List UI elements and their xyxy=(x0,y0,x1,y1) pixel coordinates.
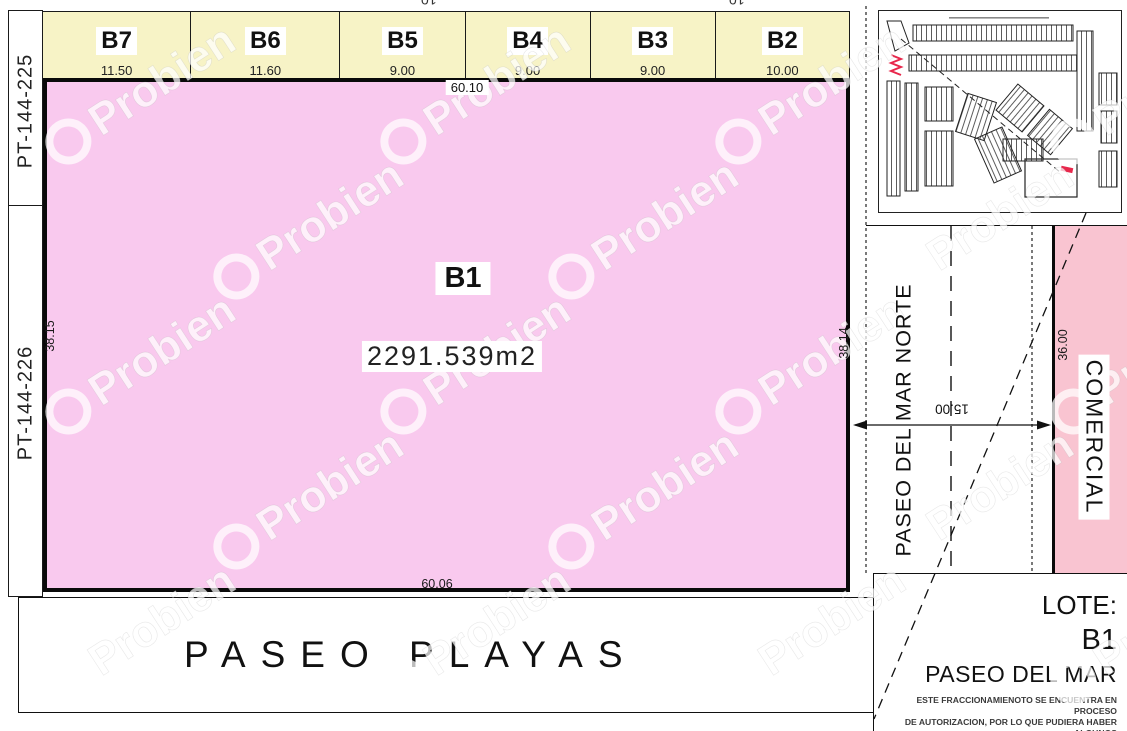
parcel-b1 xyxy=(43,78,850,592)
lot-cell-B6: B611.60 xyxy=(190,12,339,78)
boundary-label-pt-144-225: PT-144-225 xyxy=(14,54,37,169)
lot-dimension-B3: 9.00 xyxy=(591,63,715,78)
lot-cell-B2: B210.00 xyxy=(715,12,849,78)
lot-label-B5: B5 xyxy=(382,27,423,55)
lot-label-B2: B2 xyxy=(762,27,803,55)
site-location-map xyxy=(878,10,1122,213)
lot-dimension-B5: 9.00 xyxy=(340,63,464,78)
lot-dimension-B6: 11.60 xyxy=(191,63,339,78)
street-paseo-playas: PASEO PLAYAS xyxy=(18,597,875,713)
title-lot-id: B1 xyxy=(874,624,1117,657)
title-block: LOTE: B1 PASEO DEL MAR ESTE FRACCIONAMIE… xyxy=(873,573,1127,731)
lot-label-B3: B3 xyxy=(632,27,673,55)
lot-label-B7: B7 xyxy=(96,27,137,55)
dimension-arrowhead-right xyxy=(1037,421,1051,430)
street-paseo-del-mar-norte-label: PASEO DEL MAR NORTE xyxy=(892,283,917,556)
dimension-arrowhead-left xyxy=(853,421,867,430)
lot-plan-drawing: PT-144-225 PT-144-226 B711.50B611.60B59.… xyxy=(0,0,1127,731)
clipped-dimension-top-1: 10 xyxy=(421,0,437,8)
lot-cell-B7: B711.50 xyxy=(43,12,190,78)
lot-cell-B3: B39.00 xyxy=(590,12,715,78)
street-paseo-playas-label: PASEO PLAYAS xyxy=(184,634,638,676)
road-top-line xyxy=(866,225,1127,226)
lot-dimension-B2: 10.00 xyxy=(716,63,849,78)
lot-cell-B4: B49.00 xyxy=(465,12,590,78)
commercial-lot-label: COMERCIAL xyxy=(1079,355,1110,520)
boundary-label-pt-144-226: PT-144-226 xyxy=(14,346,37,461)
map-marker-red-zigzag xyxy=(891,55,901,75)
disclaimer-line-2: DE AUTORIZACION, POR LO QUE PUDIERA HABE… xyxy=(874,717,1117,731)
road-width-dimension: 15.00 xyxy=(935,402,969,417)
lot-label-B4: B4 xyxy=(507,27,548,55)
dimension-right: 38.14 xyxy=(837,327,851,358)
site-map-graphic xyxy=(879,11,1121,211)
parcel-b1-area: 2291.539m2 xyxy=(362,341,542,372)
boundary-divider-line xyxy=(9,205,42,206)
lot-dimension-B4: 9.00 xyxy=(466,63,590,78)
disclaimer-line-1: ESTE FRACCIONAMIENOTO SE ENCUENTRA EN PR… xyxy=(874,695,1117,717)
left-boundary-strip: PT-144-225 PT-144-226 xyxy=(8,10,43,597)
lot-cell-B5: B59.00 xyxy=(339,12,464,78)
parcel-b1-label: B1 xyxy=(435,262,490,295)
commercial-depth-dimension: 36.00 xyxy=(1056,329,1070,360)
dimension-top: 60.10 xyxy=(446,80,489,95)
dimension-bottom: 60.06 xyxy=(421,577,452,591)
title-lote-label: LOTE: xyxy=(874,590,1117,621)
top-lots-row: B711.50B611.60B59.00B49.00B39.00B210.00 xyxy=(43,11,850,78)
title-project-name: PASEO DEL MAR xyxy=(874,661,1117,688)
lot-label-B6: B6 xyxy=(245,27,286,55)
dimension-left: 38.15 xyxy=(43,320,57,351)
lot-dimension-B7: 11.50 xyxy=(43,63,190,78)
clipped-dimension-top-2: 10 xyxy=(729,0,745,8)
